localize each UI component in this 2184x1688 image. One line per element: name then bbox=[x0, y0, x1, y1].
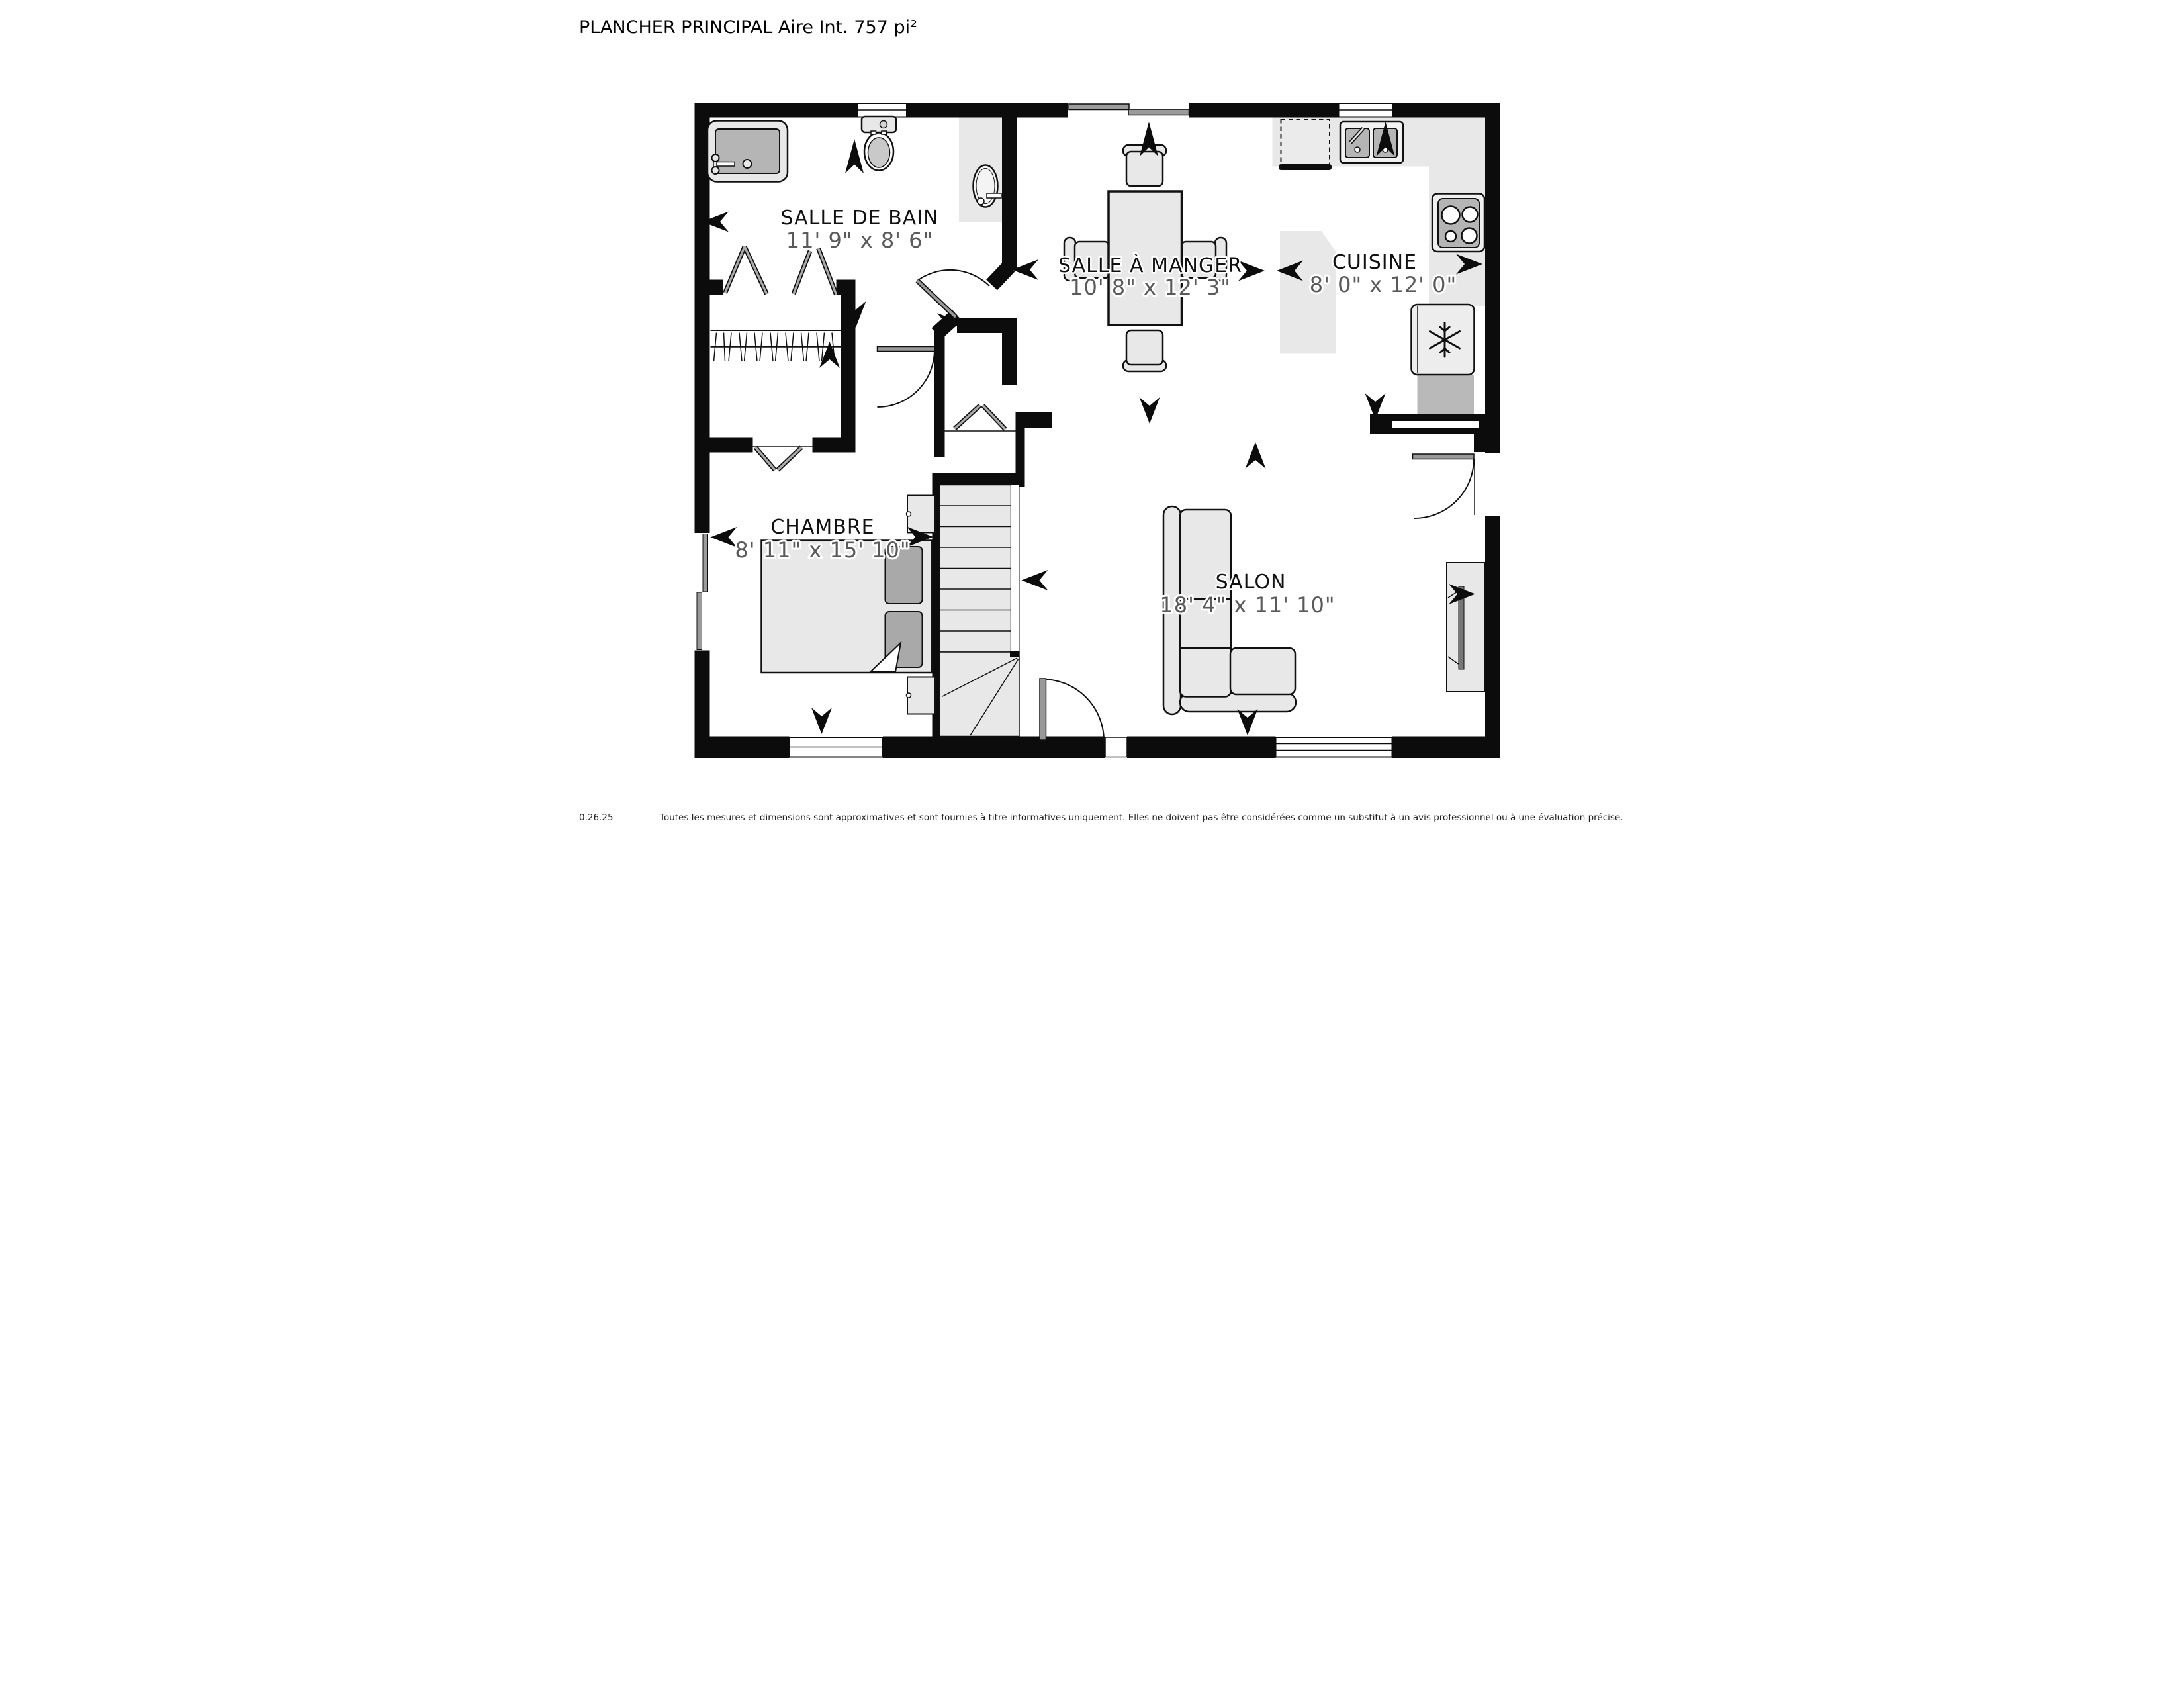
burner bbox=[1462, 228, 1477, 244]
wall-bottom-1 bbox=[695, 737, 790, 759]
bedroom-window-bottom bbox=[790, 737, 884, 757]
toilet bbox=[862, 117, 896, 171]
room-dims-living: 18' 4" x 11' 10" bbox=[1160, 592, 1335, 618]
room-label-kitchen: CUISINE bbox=[1332, 251, 1417, 274]
bedroom-door-arc bbox=[878, 350, 935, 408]
wall-bottom-2 bbox=[883, 737, 1105, 759]
stair-landing bbox=[940, 652, 1019, 737]
kitchen-sink bbox=[1340, 122, 1403, 163]
staircase bbox=[940, 485, 1019, 737]
room-label-bedroom: CHAMBRE bbox=[770, 516, 874, 539]
arrow-left-icon bbox=[1022, 570, 1048, 590]
pass-through-opening bbox=[1392, 421, 1479, 428]
wall-bath-south-a bbox=[695, 280, 723, 295]
burner bbox=[1445, 231, 1456, 242]
arrow-up-icon bbox=[845, 139, 864, 173]
entry-door-frame bbox=[1105, 737, 1127, 757]
sink-handle bbox=[987, 193, 1001, 198]
wall-nook-stub bbox=[1016, 412, 1053, 428]
bifold-doors-nook bbox=[940, 406, 1016, 432]
tv-unit bbox=[1447, 563, 1484, 692]
sofa-seat-right bbox=[1230, 648, 1295, 694]
kitchen-window bbox=[1339, 103, 1394, 117]
room-dims-kitchen: 8' 0" x 12' 0" bbox=[1310, 272, 1457, 297]
closet-rod bbox=[711, 330, 844, 361]
version-text: 0.26.25 bbox=[579, 812, 614, 823]
room-label-living: SALON bbox=[1216, 571, 1287, 594]
dining-window bbox=[1068, 102, 1189, 118]
arrow-down-icon bbox=[1140, 397, 1160, 424]
bathtub bbox=[707, 121, 788, 182]
stove bbox=[1432, 194, 1484, 252]
bathroom-window bbox=[857, 103, 907, 117]
dining-chair-bottom bbox=[1123, 330, 1166, 371]
wall-bottom-3 bbox=[1127, 737, 1276, 759]
arrow-right-icon bbox=[1238, 261, 1265, 281]
disclaimer-text: Toutes les mesures et dimensions sont ap… bbox=[659, 812, 1623, 823]
arrow-up-icon bbox=[1246, 442, 1266, 469]
side-door-leaf bbox=[1413, 454, 1475, 459]
fridge bbox=[1412, 305, 1475, 375]
room-dims-bathroom: 11' 9" x 8' 6" bbox=[786, 228, 933, 253]
living-window-bottom bbox=[1276, 737, 1392, 757]
bifold-doors-bedroom-closet bbox=[753, 447, 813, 470]
stair-stringer bbox=[1011, 485, 1020, 653]
tv-console bbox=[1447, 563, 1484, 692]
wall-vestibule bbox=[934, 330, 945, 457]
burner bbox=[1463, 207, 1478, 222]
tub-drain bbox=[743, 160, 752, 168]
entry-door-arc bbox=[1042, 679, 1104, 741]
wall-bathroom-east bbox=[1002, 118, 1017, 269]
wall-hall-north bbox=[957, 318, 1017, 333]
burner bbox=[1442, 207, 1460, 224]
wall-right-jog bbox=[1474, 434, 1492, 453]
dishwasher bbox=[1279, 120, 1332, 170]
bathroom-door-arc bbox=[917, 270, 989, 286]
room-dims-dining: 10' 8" x 12' 3" bbox=[1069, 275, 1231, 300]
room-dims-bedroom: 8' 11" x 15' 10" bbox=[735, 538, 910, 563]
wall-right-upper bbox=[1485, 103, 1500, 453]
entry-door-leaf bbox=[1040, 679, 1046, 740]
bathroom-door-leaf bbox=[917, 281, 956, 317]
side-door-arc bbox=[1414, 459, 1474, 518]
wall-closet-bottom-b bbox=[813, 438, 856, 453]
tub-spout bbox=[717, 162, 735, 167]
bedroom-door-leaf bbox=[878, 347, 935, 352]
page-title: PLANCHER PRINCIPAL Aire Int. 757 pi² bbox=[579, 17, 917, 38]
wall-right-lower bbox=[1485, 516, 1500, 758]
floor-plan-page: PLANCHER PRINCIPAL Aire Int. 757 pi² bbox=[546, 0, 1638, 844]
wall-hall-east bbox=[1002, 333, 1017, 385]
arrow-down-icon bbox=[811, 708, 832, 734]
nightstand-top bbox=[907, 496, 935, 533]
bifold-doors-bathroom bbox=[725, 247, 837, 295]
wall-closet-bottom-a bbox=[695, 438, 753, 453]
room-label-bathroom: SALLE DE BAIN bbox=[780, 207, 938, 230]
bedroom-window-left bbox=[695, 533, 710, 651]
wall-diagonal-bath bbox=[992, 267, 1010, 285]
floor-plan-canvas: PLANCHER PRINCIPAL Aire Int. 757 pi² bbox=[546, 0, 1638, 844]
counter-below-fridge bbox=[1418, 375, 1475, 414]
arrow-down-icon bbox=[1238, 709, 1258, 735]
room-label-dining: SALLE À MANGER bbox=[1058, 254, 1242, 277]
arrow-left-icon bbox=[711, 527, 737, 547]
nightstand-bottom bbox=[907, 677, 935, 714]
wall-bottom-4 bbox=[1392, 737, 1501, 759]
